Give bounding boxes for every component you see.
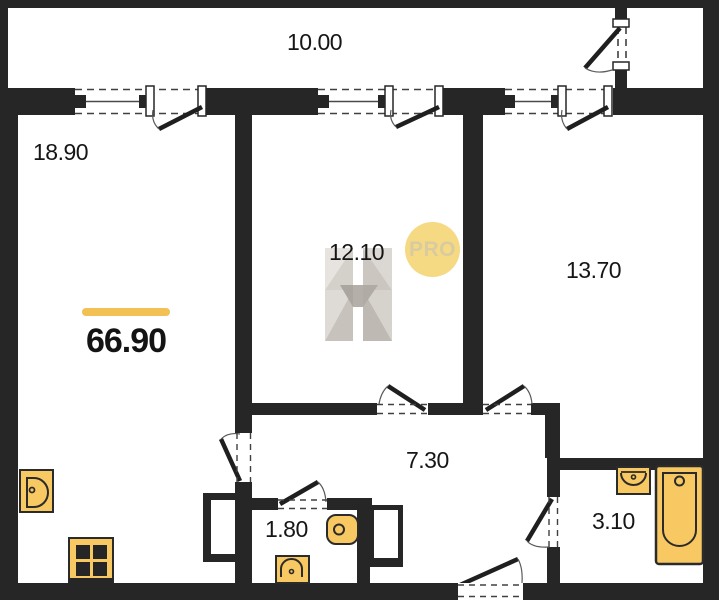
toilet-fixture (327, 515, 358, 544)
wall-facade-seg1 (8, 88, 75, 115)
pro-badge-label: PRO (409, 238, 456, 262)
total-area-value: 66.90 (60, 324, 192, 358)
balcony-door3-leaf (567, 107, 608, 129)
wall-right (703, 0, 719, 600)
bedroom2-door-leaf (486, 386, 524, 410)
bathroom-door-leaf (527, 499, 552, 541)
kitchen-sink-fixture (20, 470, 53, 512)
wall-bath-left-a (545, 415, 560, 458)
shaft-right-inner (374, 510, 398, 558)
wall-wc-top2 (327, 498, 372, 510)
wall-left (0, 115, 18, 600)
room-label-wc: 1.80 (265, 518, 308, 541)
bath-sink-fixture (617, 467, 650, 494)
balcony-door2-leaf (396, 107, 439, 127)
wall-interior1-lower (235, 482, 252, 583)
wall-facade-seg3 (443, 88, 505, 115)
wall-hall-top3 (531, 403, 560, 415)
room-label-bedroom-2: 13.70 (566, 259, 621, 282)
bathtub-fixture (656, 466, 703, 564)
windows (75, 27, 626, 114)
wall-balcony-partition-bottom (615, 68, 627, 88)
room-label-balcony: 10.00 (287, 31, 342, 54)
floor-plan: 10.00 18.90 12.10 13.70 7.30 1.80 3.10 6… (0, 0, 719, 600)
total-area: 66.90 (60, 308, 192, 358)
stove-fixture (69, 538, 113, 585)
wall-facade-seg4 (613, 88, 703, 115)
wall-hall-top1 (235, 403, 377, 415)
wall-bath-left-c (547, 547, 560, 583)
shaft-left-inner (211, 500, 235, 554)
entrance-door-leaf (460, 559, 518, 585)
wc-door-leaf (280, 482, 318, 504)
total-area-accent-bar (82, 308, 170, 316)
wc-sink-fixture (276, 556, 309, 583)
room-label-hallway: 7.30 (406, 449, 449, 472)
wall-interior2 (463, 115, 483, 415)
bedroom-door-leaf (388, 386, 425, 410)
wall-wc-right (357, 510, 370, 583)
pro-badge: PRO (405, 222, 460, 277)
room-label-bedroom: 12.10 (329, 241, 384, 264)
wall-interior1-upper (235, 115, 252, 433)
wall-top (0, 0, 719, 8)
room-label-bathroom: 3.10 (592, 510, 635, 533)
wall-facade-seg2 (205, 88, 318, 115)
wall-hall-top2 (428, 403, 483, 415)
wall-balcony-left (0, 8, 8, 115)
balcony-door1-leaf (159, 107, 202, 129)
room-label-kitchen-living: 18.90 (33, 141, 88, 164)
wall-wc-top1 (252, 498, 278, 510)
wall-bottom (0, 583, 719, 600)
